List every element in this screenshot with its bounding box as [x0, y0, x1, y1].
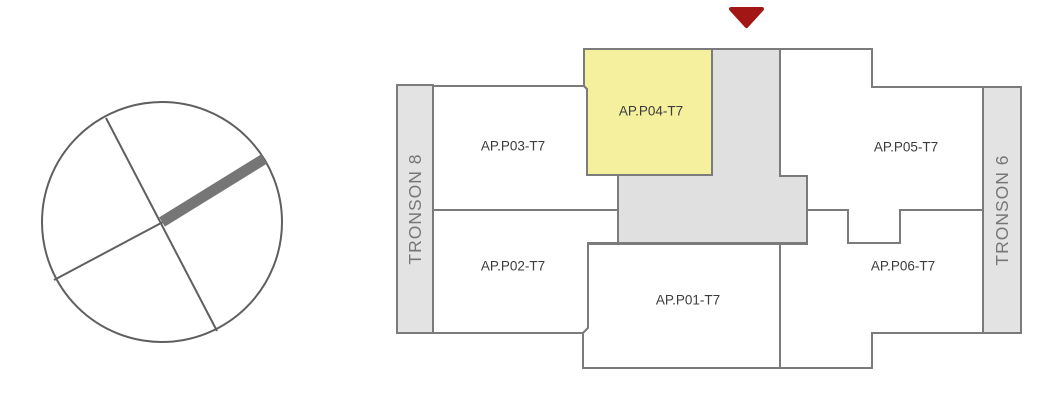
tronson-6-bar[interactable]	[983, 87, 1021, 333]
compass-dial	[42, 102, 282, 342]
floorplan-canvas: AP.P01-T7 AP.P02-T7 AP.P03-T7 AP.P04-T7 …	[0, 0, 1062, 402]
room-ap-p04-t7-highlighted[interactable]	[584, 49, 712, 175]
compass-needle-icon	[162, 159, 264, 222]
entrance-marker-icon	[731, 9, 762, 26]
floorplan-page: AP.P01-T7 AP.P02-T7 AP.P03-T7 AP.P04-T7 …	[0, 0, 1062, 402]
tronson-8-bar[interactable]	[397, 85, 433, 333]
room-ap-p01-t7[interactable]	[583, 244, 780, 368]
compass-thin-line-icon	[54, 222, 163, 280]
compass-chord-icon	[106, 118, 217, 331]
